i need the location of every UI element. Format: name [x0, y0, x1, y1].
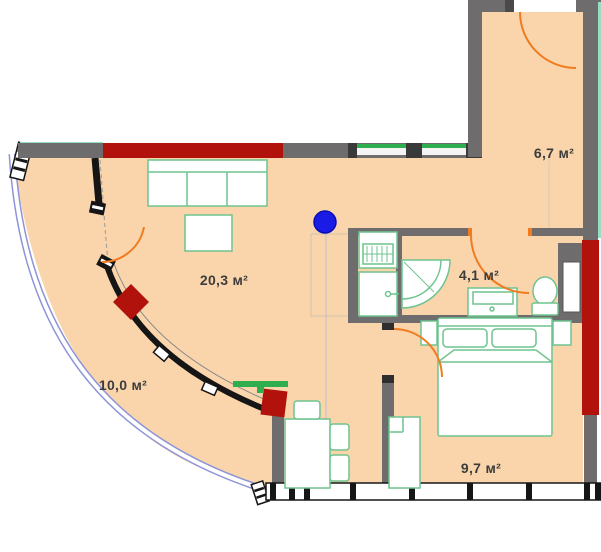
pillow-left [443, 329, 487, 347]
wardrobe [389, 417, 420, 488]
bedroom-label: 9,7 м² [461, 460, 501, 476]
top-wall-left [18, 143, 103, 158]
dining-table [285, 419, 330, 488]
washing-machine [359, 232, 397, 268]
hallway-label: 6,7 м² [534, 145, 574, 161]
bedroom-door-jamb-top [382, 323, 394, 330]
bedroom-right-wall [584, 415, 597, 488]
red-marker-top-wall [103, 143, 283, 158]
cabinet [359, 272, 399, 316]
sofa [148, 160, 267, 206]
bathroom-door-jamb-left [468, 228, 472, 236]
tv-stand-stem [257, 387, 264, 393]
tv-bar [233, 381, 288, 387]
balcony-label: 10,0 м² [99, 377, 147, 393]
toilet [532, 277, 558, 315]
bathroom-label: 4,1 м² [459, 267, 499, 283]
bathroom-top-wall-b [531, 228, 583, 236]
floor-plan-drawing: 20,3 м² 10,0 м² 6,7 м² 4,1 м² 9,7 м² [0, 0, 601, 552]
living-room-label: 20,3 м² [200, 272, 248, 288]
bed [438, 318, 552, 436]
top-window-post-1 [348, 143, 357, 158]
nightstand-right [553, 321, 571, 345]
top-wall-mid [283, 143, 348, 158]
hall-right-wall [583, 0, 598, 240]
top-window-glass-2 [422, 144, 466, 148]
duct-niche-window [563, 262, 580, 312]
nightstand-left [421, 321, 437, 345]
bedroom-door-jamb-bottom [382, 375, 394, 383]
red-marker-shaft [582, 240, 599, 415]
floor-plan-canvas: 20,3 м² 10,0 м² 6,7 м² 4,1 м² 9,7 м² [0, 0, 601, 552]
pillow-right [492, 329, 536, 347]
red-marker-dining [261, 389, 288, 418]
sink [468, 288, 517, 316]
entrance-door-post [505, 0, 514, 12]
bedroom-door-gap [382, 330, 394, 375]
top-window-post-2 [406, 143, 422, 158]
hall-top-wall-a [482, 0, 505, 12]
top-window-glass-1 [357, 144, 406, 148]
curve-end-wall [272, 413, 284, 488]
bathroom-left-wall [348, 228, 358, 323]
bathroom-door-jamb-right [528, 228, 532, 236]
coffee-table [185, 215, 232, 251]
blue-dot-marker [314, 211, 336, 233]
hall-left-wall [468, 0, 482, 157]
wall-segment-upper [95, 158, 99, 204]
